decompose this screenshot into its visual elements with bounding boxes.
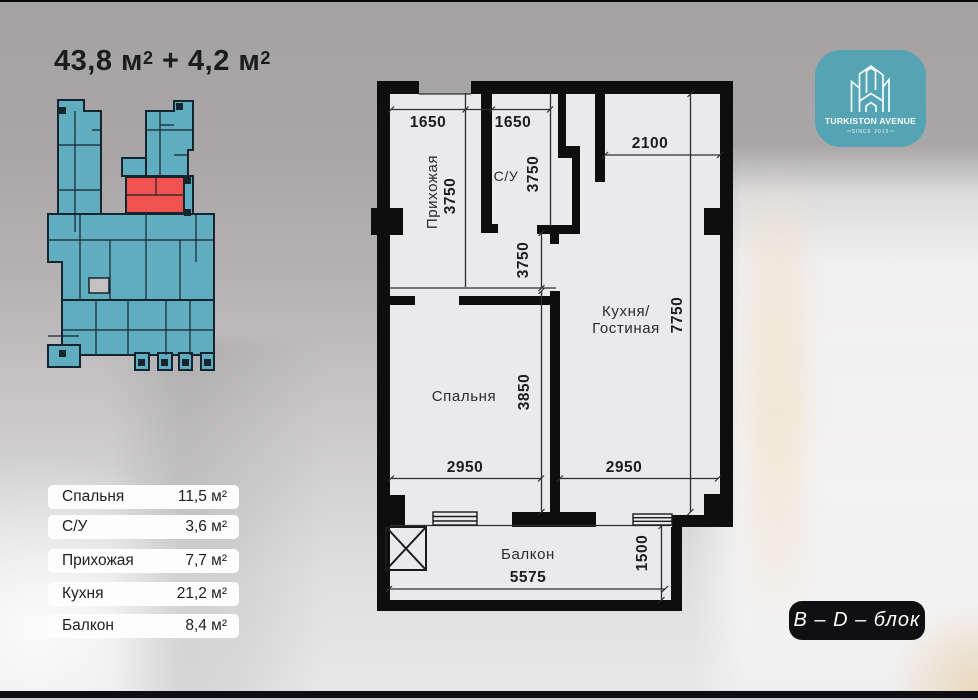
svg-text:Гостиная: Гостиная	[592, 320, 660, 337]
svg-text:SINCE 2015: SINCE 2015	[852, 129, 890, 135]
svg-text:2100: 2100	[632, 135, 668, 152]
svg-text:Балкон: Балкон	[501, 546, 555, 563]
svg-text:TURKISTON AVENUE: TURKISTON AVENUE	[825, 116, 916, 126]
svg-text:7750: 7750	[669, 297, 686, 333]
svg-text:Кухня/: Кухня/	[602, 303, 650, 320]
svg-text:3750: 3750	[525, 156, 542, 192]
svg-text:3750: 3750	[515, 242, 532, 278]
svg-text:1650: 1650	[495, 114, 531, 131]
svg-text:2950: 2950	[606, 459, 642, 476]
svg-text:С/У: С/У	[494, 168, 519, 184]
svg-text:3850: 3850	[516, 374, 533, 410]
svg-text:2950: 2950	[447, 459, 483, 476]
svg-text:Прихожая: Прихожая	[424, 155, 441, 229]
svg-text:5575: 5575	[510, 569, 546, 586]
svg-text:1500: 1500	[634, 535, 651, 571]
svg-text:1650: 1650	[410, 114, 446, 131]
svg-text:Спальня: Спальня	[432, 388, 496, 405]
svg-text:3750: 3750	[442, 178, 459, 214]
